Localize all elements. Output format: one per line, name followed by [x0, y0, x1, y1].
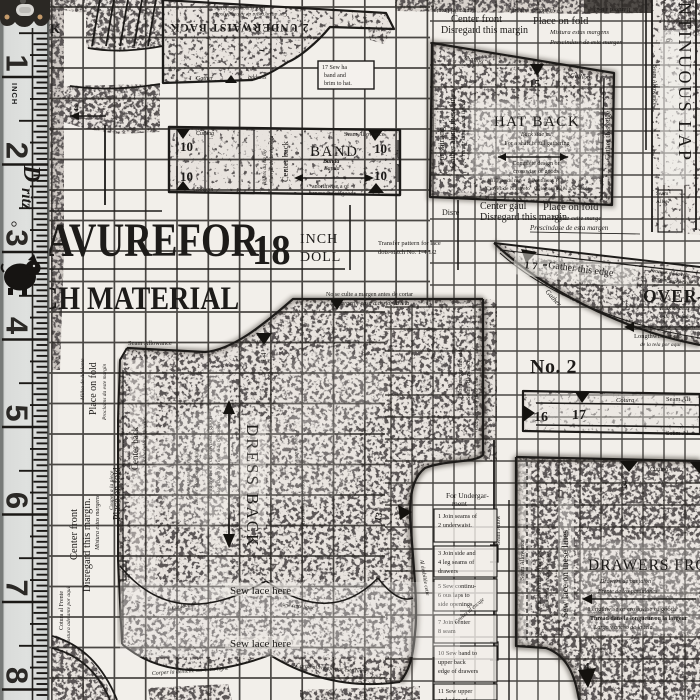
svg-text:Millsa de Adelante: Millsa de Adelante: [80, 358, 86, 401]
svg-text:3: 3: [622, 479, 628, 491]
svg-text:Longthwise or cro: Longthwise or cro: [634, 333, 682, 340]
svg-text:Center front: Center front: [451, 14, 502, 25]
svg-text:Cortar el encaje por aqui: Cortar el encaje por aqui: [545, 551, 551, 608]
svg-text:drawers: drawers: [438, 568, 458, 575]
svg-text:upper back: upper back: [438, 659, 467, 666]
svg-text:Billets du da my: Billets du da my: [262, 149, 268, 185]
svg-text:Pontillons P.: Pontillons P.: [532, 178, 560, 184]
svg-text:Sew lace here: Sew lace here: [230, 585, 291, 597]
svg-text:Cor de un regla de la condensa: Cor de un regla de la condensada: [212, 11, 287, 17]
svg-text:Gather this edge: Gather this edge: [603, 110, 612, 160]
svg-text:Costura adelante por aqui: Costura adelante por aqui: [66, 586, 72, 645]
svg-text:Prescindase de esta margen: Prescindase de esta margen: [549, 39, 623, 46]
svg-text:Gather along this line: Gather along this line: [142, 416, 148, 465]
svg-text:edge of drawers: edge of drawers: [438, 668, 479, 675]
svg-text:4: 4: [0, 317, 35, 335]
svg-text:Seam Allowance: Seam Allowance: [344, 132, 385, 138]
svg-text:Mistura estas margens: Mistura estas margens: [95, 495, 101, 551]
svg-text:Coldplaca este terlas: Coldplaca este terlas: [505, 7, 555, 13]
svg-text:Cuerpo de la espalda: Cuerpo de la espalda: [269, 136, 275, 183]
svg-text:1: 1: [0, 54, 35, 71]
svg-text:Centro del Frente: Centro del Frente: [434, 7, 476, 13]
svg-text:Sew lace on these lines: Sew lace on these lines: [561, 530, 571, 618]
svg-text:Cotura al Frente: Cotura al Frente: [59, 591, 65, 630]
svg-text:Disregard this margin.: Disregard this margin.: [82, 498, 93, 592]
svg-text:D: D: [18, 164, 44, 182]
svg-text:Transfer pattern for lace: Transfer pattern for lace: [378, 240, 441, 247]
svg-text:3 Join side and: 3 Join side and: [438, 550, 476, 557]
svg-text:Seam Allowance: Seam Allowance: [520, 539, 526, 580]
svg-text:10: 10: [374, 168, 387, 183]
svg-text:INCH: INCH: [10, 83, 19, 105]
svg-text:11 Sew upper: 11 Sew upper: [438, 688, 473, 695]
svg-text:1 Join seams of: 1 Join seams of: [438, 513, 478, 520]
svg-text:1 7: 1 7: [524, 260, 538, 273]
svg-text:For margin this side: For margin this side: [458, 347, 464, 395]
svg-text:Banda: Banda: [322, 159, 339, 165]
svg-text:17 Sew ha: 17 Sew ha: [322, 65, 347, 71]
svg-text:Lengthwise or crosswise of goo: Lengthwise or crosswise of goods: [588, 606, 677, 613]
svg-text:Croyez de N angelo: Croyez de N angelo: [486, 186, 530, 192]
svg-text:Seam Al: Seam Al: [666, 430, 688, 437]
svg-text:Sew lace here: Sew lace here: [230, 638, 291, 650]
svg-text:Back side a...: Back side a...: [521, 132, 553, 138]
svg-text:Frente de los pantalones: Frente de los pantalones: [597, 589, 658, 595]
svg-text:17: 17: [572, 408, 586, 423]
svg-text:de la tela por aqui: de la tela por aqui: [640, 342, 681, 348]
svg-text:No. 2: No. 2: [530, 356, 577, 378]
svg-text:Seam Allowance: Seam Allowance: [466, 359, 472, 400]
svg-text:HAT BACK: HAT BACK: [494, 114, 580, 130]
svg-text:Cotura: Cotura: [616, 397, 634, 404]
svg-text:CH MATERIAL: CH MATERIAL: [38, 280, 239, 317]
svg-text:Hilflose du net: Hilflose du net: [488, 177, 521, 184]
svg-text:Center back: Center back: [280, 140, 290, 182]
svg-text:Reglez cette marge: Reglez cette marge: [551, 215, 601, 222]
svg-text:1-4: 1-4: [260, 352, 268, 362]
svg-text:OVER-B: OVER-B: [643, 286, 700, 306]
svg-text:4: 4: [74, 103, 79, 113]
svg-text:No se culte a margen antes de: No se culte a margen antes de cortar: [326, 292, 413, 298]
svg-text:Gather: Gather: [196, 76, 214, 82]
svg-text:Para el margen de la tela: Para el margen de la tela: [214, 5, 267, 10]
svg-text:dots-stitch No. 1-4 1/2: dots-stitch No. 1-4 1/2: [378, 249, 437, 256]
svg-text:16: 16: [534, 410, 548, 425]
svg-text:Center gaul: Center gaul: [480, 201, 527, 212]
svg-text:Mistura estas margens: Mistura estas margens: [549, 29, 609, 36]
svg-text:2 underwaist.: 2 underwaist.: [438, 522, 472, 529]
svg-text:BAND: BAND: [310, 144, 359, 160]
svg-text:7: 7: [0, 579, 35, 596]
svg-text:Coupes a la piece: Coupes a la piece: [109, 470, 115, 510]
svg-text:brim to hat.: brim to hat.: [324, 81, 352, 87]
svg-text:For shirring,: For shirring,: [437, 125, 446, 165]
svg-text:Proclaims da este margin: Proclaims da este margin: [102, 363, 108, 421]
svg-text:Center front: Center front: [69, 509, 80, 560]
svg-text:Prescindase de esta margen: Prescindase de esta margen: [529, 224, 609, 232]
svg-text:Banda: Banda: [324, 166, 340, 172]
svg-text:address: address: [248, 75, 267, 81]
svg-text:Center back: Center back: [130, 426, 140, 470]
svg-text:DRAWERS FRON: DRAWERS FRON: [588, 557, 700, 574]
svg-text:Seam Allowance: Seam Allowance: [128, 340, 172, 347]
svg-text:Disregard this margin: Disregard this margin: [441, 25, 528, 36]
svg-text:Place on fold: Place on fold: [88, 362, 99, 415]
svg-text:10: 10: [180, 139, 193, 154]
svg-text:crosswise of goods: crosswise of goods: [310, 190, 356, 197]
svg-text:Largo y ancho de la tela: Largo y ancho de la tela: [593, 625, 653, 631]
svg-text:K: K: [50, 21, 61, 36]
svg-text:Seam All: Seam All: [666, 396, 690, 403]
svg-text:8: 8: [0, 667, 35, 684]
svg-text:Disre: Disre: [442, 208, 460, 217]
svg-text:Coloquen toles a le doble: Coloquen toles a le doble: [534, 186, 590, 192]
svg-text:2: 2: [0, 142, 35, 159]
svg-text:DOLL: DOLL: [300, 250, 341, 265]
svg-text:anorthwise a of: anorthwise a of: [312, 183, 349, 190]
svg-text:Back de deux: Back de deux: [660, 306, 690, 312]
svg-text:2 UNDERWAIST BACK: 2 UNDERWAIST BACK: [169, 21, 308, 33]
svg-text:Fruncir aqui estas lineas: Fruncir aqui estas lineas: [461, 99, 467, 161]
svg-text:Gather along these lines: Gather along these lines: [448, 91, 457, 168]
svg-text:Cutting: Cutting: [650, 467, 668, 473]
svg-text:INCH: INCH: [300, 232, 338, 247]
svg-text:Seam Allowance: Seam Allowance: [651, 65, 657, 106]
svg-text:5: 5: [0, 404, 35, 421]
svg-text:Place on fold: Place on fold: [533, 16, 589, 27]
svg-text:4 leg seams of: 4 leg seams of: [438, 559, 475, 566]
svg-text:Hartford a 8-2?: Hartford a 8-2?: [593, 6, 630, 13]
svg-text:AVUREFOR: AVUREFOR: [46, 214, 259, 267]
svg-text:ment: ment: [452, 499, 468, 508]
svg-text:15: 15: [529, 78, 541, 90]
svg-text:3: 3: [0, 229, 35, 246]
svg-text:Complete design or: Complete design or: [513, 161, 560, 167]
svg-text:18: 18: [252, 227, 291, 274]
svg-text:band and: band and: [324, 73, 346, 79]
svg-text:ritz: ritz: [18, 188, 35, 210]
svg-text:10: 10: [374, 141, 387, 156]
svg-text:Ala si genero: Ala si genero: [661, 314, 691, 320]
svg-text:Gather along these lines: Gather along these lines: [474, 376, 480, 430]
svg-text:Cut lace on these lines per: Cut lace on these lines per: [537, 550, 543, 608]
svg-text:For a shaft is full gathering: For a shaft is full gathering: [504, 140, 569, 147]
svg-text:crosswise of goods: crosswise of goods: [513, 168, 559, 175]
svg-text:Drawers de pantalon: Drawers de pantalon: [599, 579, 651, 585]
svg-text:10: 10: [180, 169, 193, 184]
svg-text:6: 6: [0, 492, 35, 509]
svg-text:NTINUOUS LAP: NTINUOUS LAP: [675, 2, 695, 163]
svg-text:Thread dans la longueur ou la: Thread dans la longueur ou la largeur: [590, 616, 688, 622]
